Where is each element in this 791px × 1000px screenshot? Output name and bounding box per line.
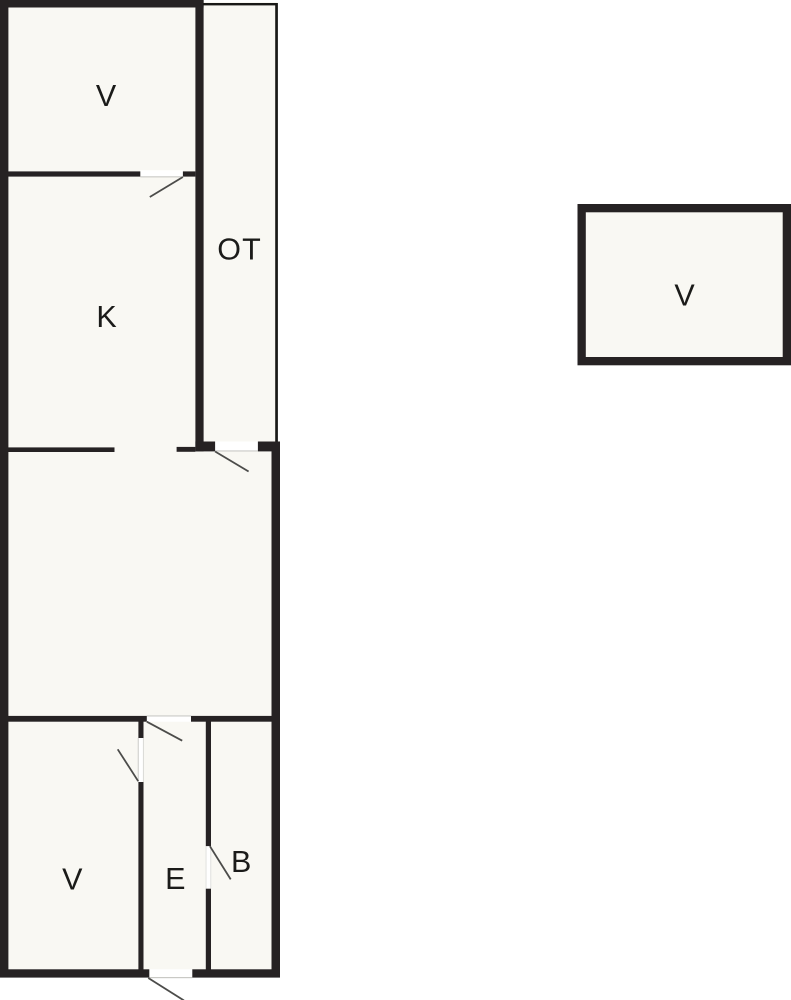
svg-text:V: V <box>62 863 83 897</box>
svg-text:V: V <box>96 79 117 113</box>
svg-text:OT: OT <box>217 233 262 267</box>
svg-text:V: V <box>674 278 695 312</box>
svg-text:E: E <box>165 862 185 896</box>
svg-text:K: K <box>96 300 116 334</box>
svg-text:B: B <box>231 845 251 879</box>
